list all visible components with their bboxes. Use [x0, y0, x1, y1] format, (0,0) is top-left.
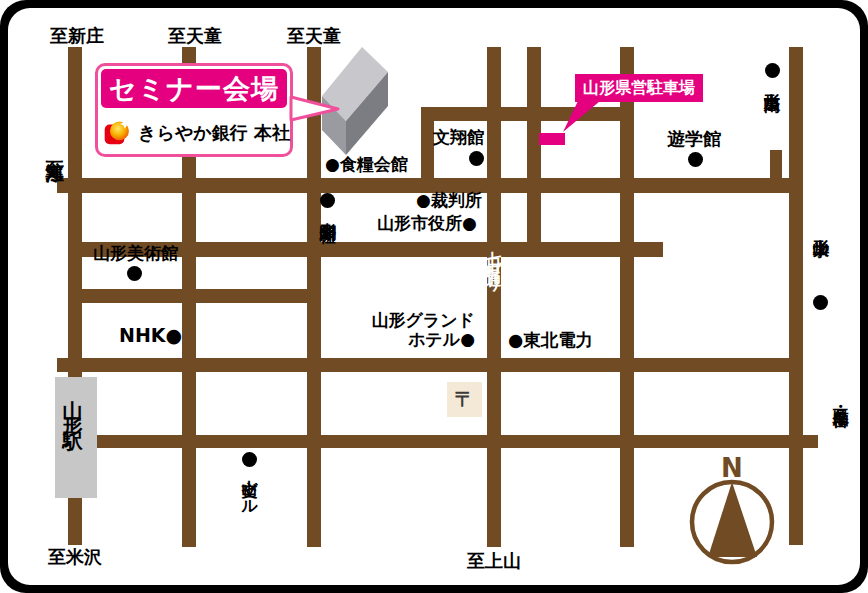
tohoku-denryoku-label: ●東北電力 [508, 331, 593, 349]
shinbunsha-dot [320, 193, 335, 208]
daigaku-dot [813, 295, 828, 310]
road-horizontal-bunshokan [421, 107, 634, 121]
direction-to-kencho-sendai: 至県庁・仙台 [832, 396, 850, 399]
direction-to-shinjo: 至新庄 [50, 27, 104, 46]
direction-to-tendo-2: 至天童 [287, 27, 341, 46]
post-office-block: 〒 [447, 382, 482, 417]
higashi-high-dot [765, 63, 780, 78]
direction-to-yonezawa: 至米沢 [48, 548, 102, 567]
yugakukan-dot [688, 152, 703, 167]
nanokamachi-street-label: 七日町通り [485, 238, 503, 289]
road-nanokamachi-dori [487, 47, 501, 547]
bank-identity-row: きらやか銀行 本社 [104, 112, 290, 154]
road-horizontal-bijutsukan [68, 289, 321, 303]
shiyakusho-label: 山形市役所● [377, 215, 477, 233]
direction-to-tendo-1: 至天童 [168, 27, 222, 46]
seminar-venue-banner-text: セミナー会場 [109, 71, 279, 107]
road-vertical-east-2 [789, 47, 803, 545]
parking-callout: 山形県営駐車場 [575, 74, 703, 102]
bunshokan-dot [469, 151, 484, 166]
yamagata-higashi-high-label: 山形東高 [762, 80, 780, 82]
bank-name-label: きらやか銀行 本社 [138, 121, 290, 145]
yugakukan-label: 遊学館 [667, 130, 721, 149]
road-vertical-east-1 [620, 47, 634, 547]
seminar-venue-callout: セミナー会場 きらやか銀行 本社 [95, 63, 293, 157]
yamagata-daigaku-label: 山形大学 [811, 226, 829, 228]
road-horizontal-station-kencho [95, 435, 818, 448]
post-office-icon: 〒 [455, 386, 475, 413]
yamagata-shinbunsha-label: 山形新聞社 [318, 209, 336, 214]
bijutsukan-dot [127, 266, 142, 281]
seminar-venue-banner: セミナー会場 [101, 69, 287, 108]
direction-to-kaminoyama: 至上山 [467, 552, 521, 571]
road-vertical-short-center [527, 47, 541, 257]
yamagata-station-label: 山形駅 [62, 385, 84, 430]
parking-callout-text: 山形県営駐車場 [583, 78, 695, 99]
parking-location-marker [539, 133, 565, 145]
nhk-label: NHK● [119, 326, 182, 346]
grand-hotel-label: 山形グランド ホテル● [369, 311, 475, 349]
sanko-building-dot [242, 452, 257, 467]
shokuryo-kaikan-label: ●食糧会館 [325, 156, 408, 174]
kirayaka-bank-logo-icon [104, 113, 132, 153]
road-horizontal-nhk [57, 358, 803, 372]
bunshokan-label: 文翔館 [433, 129, 484, 147]
access-map: 山形駅 〒 N 至新庄 至天童 至天童 至寒河江 至米沢 至上山 至県庁・仙台 … [0, 0, 868, 593]
saibansho-label: ●裁判所 [416, 192, 482, 210]
bijutsukan-label: 山形美術館 [93, 245, 178, 263]
direction-to-sagae: 至寒河江 [44, 146, 64, 150]
sanko-building-label: 山交ビル [241, 467, 259, 507]
